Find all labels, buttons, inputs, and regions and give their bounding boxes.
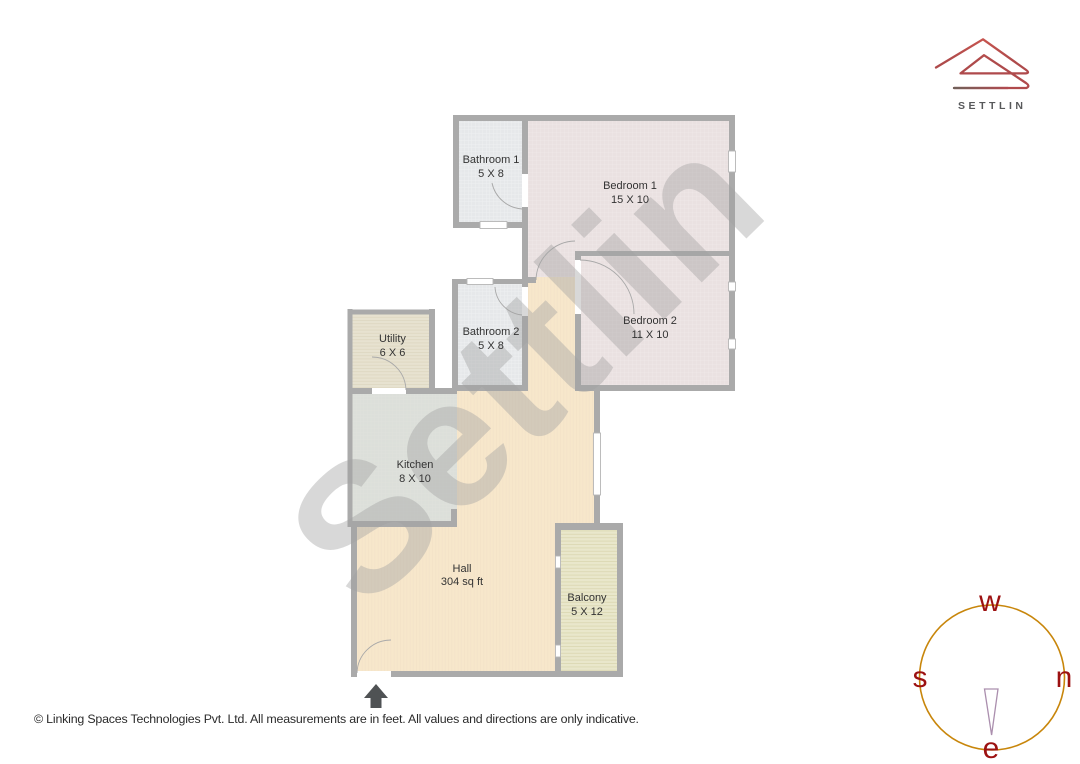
svg-text:Balcony: Balcony [567,592,607,604]
svg-text:15 X 10: 15 X 10 [611,194,649,206]
svg-text:Bathroom 2: Bathroom 2 [463,326,520,338]
svg-text:Kitchen: Kitchen [397,459,434,471]
svg-text:5 X 8: 5 X 8 [478,340,504,352]
svg-text:e: e [983,732,1000,764]
svg-text:SETTLIN: SETTLIN [958,100,1027,112]
svg-text:11 X 10: 11 X 10 [631,329,668,341]
svg-text:Bedroom 1: Bedroom 1 [603,180,657,192]
svg-text:6 X 6: 6 X 6 [380,347,406,359]
svg-text:8 X 10: 8 X 10 [399,473,431,485]
svg-text:n: n [1056,661,1073,694]
svg-text:Hall: Hall [453,563,472,575]
svg-text:304 sq ft: 304 sq ft [441,576,483,588]
svg-text:Bathroom 1: Bathroom 1 [463,154,520,166]
svg-text:Bedroom 2: Bedroom 2 [623,315,677,327]
svg-text:© Linking Spaces Technologies: © Linking Spaces Technologies Pvt. Ltd. … [34,712,639,726]
svg-text:s: s [913,661,928,694]
svg-text:w: w [978,585,1001,618]
svg-text:5 X 8: 5 X 8 [478,168,504,180]
svg-text:Utility: Utility [379,333,406,345]
svg-text:5 X 12: 5 X 12 [571,606,603,618]
